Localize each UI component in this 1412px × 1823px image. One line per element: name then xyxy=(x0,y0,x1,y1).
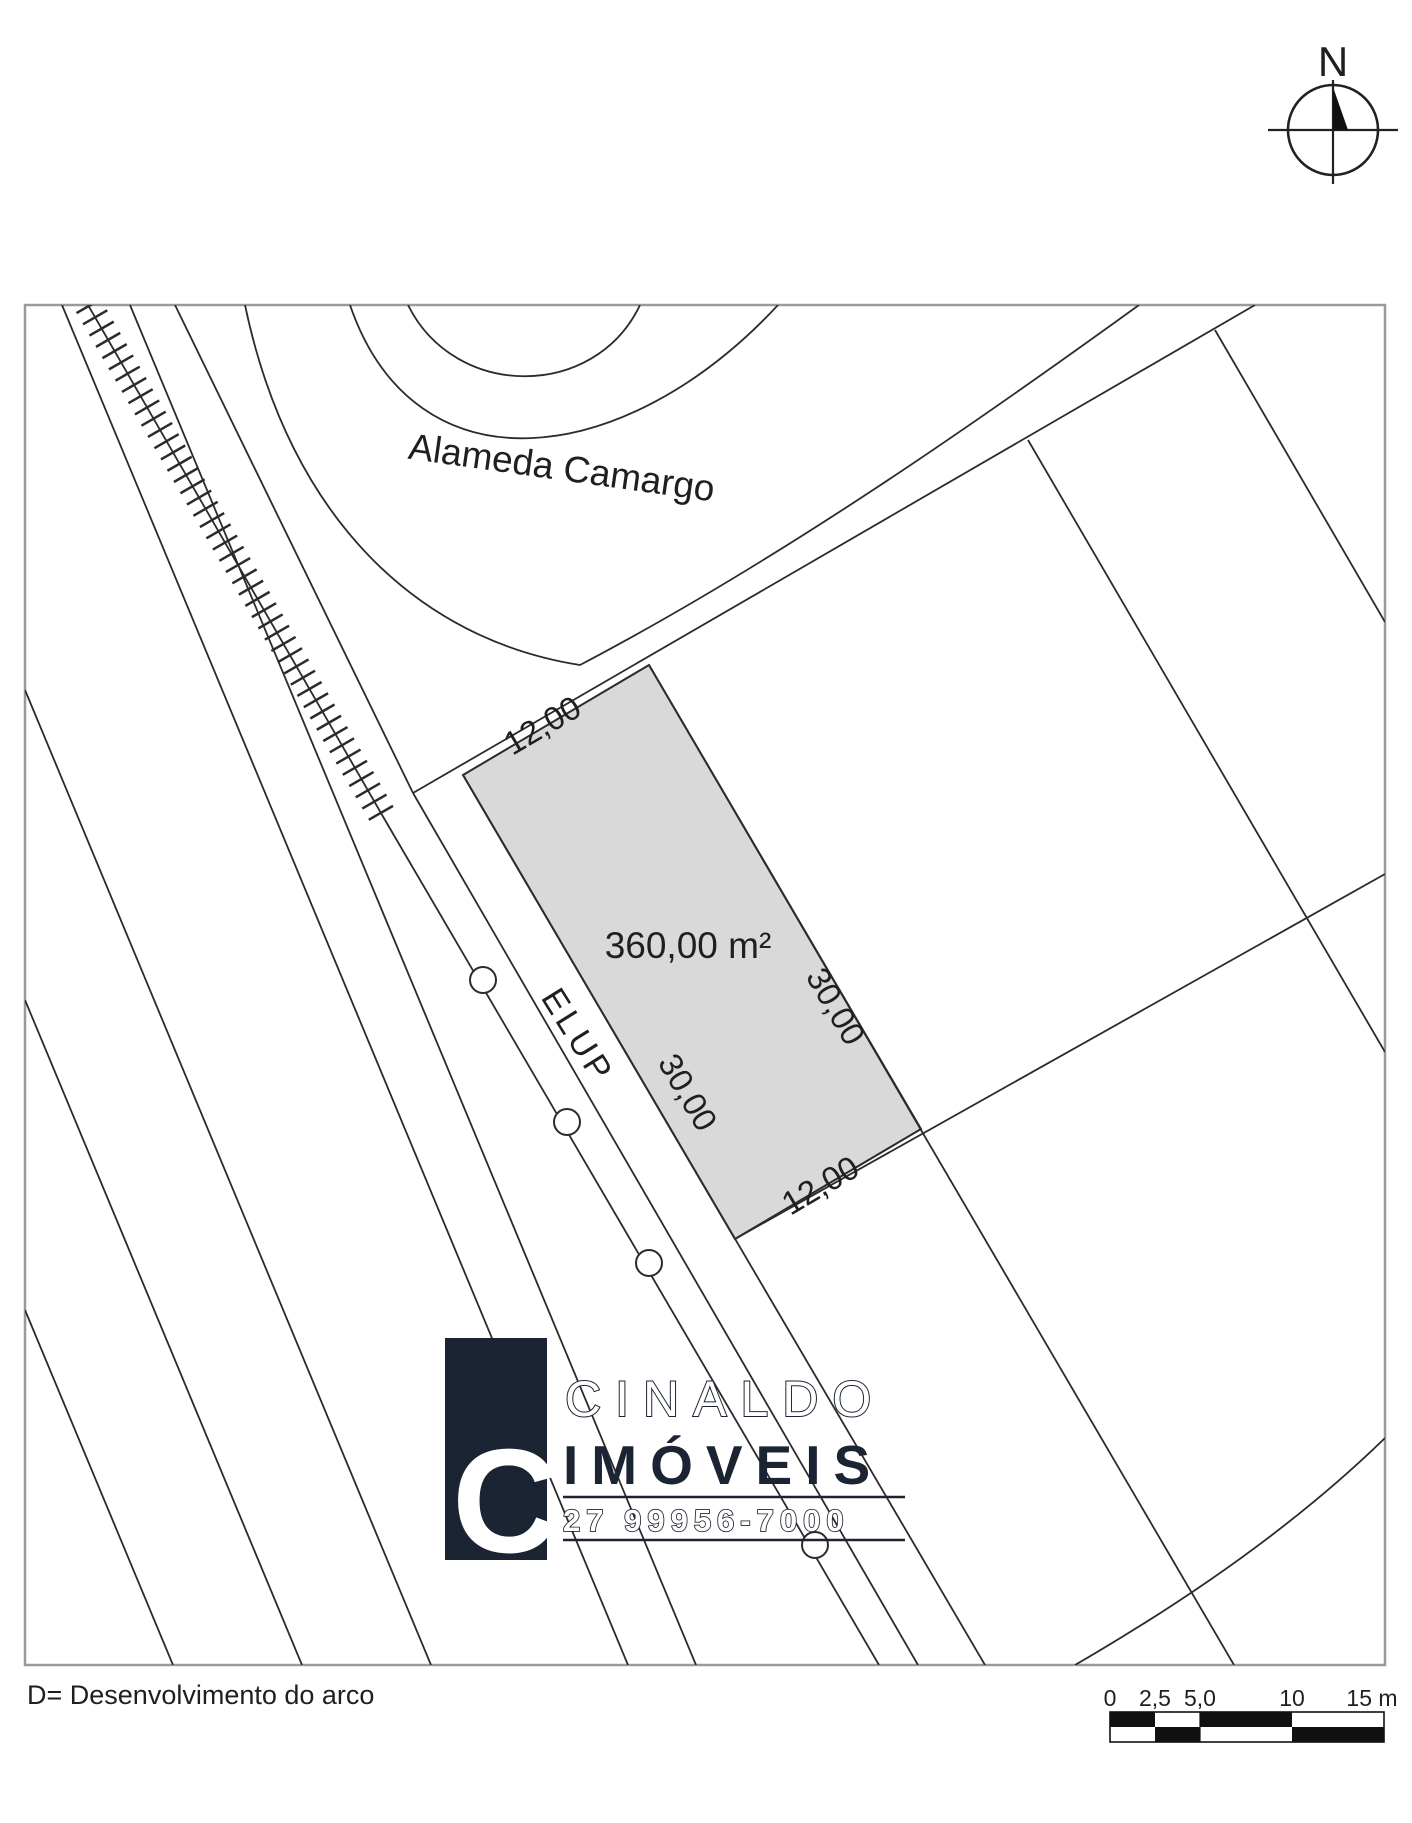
scale-segment xyxy=(1110,1727,1155,1742)
logo-phone: 27 99956-7000 xyxy=(563,1503,850,1538)
logo-name-line2: IMÓVEIS xyxy=(563,1434,883,1496)
scale-tick-label: 0 xyxy=(1104,1685,1117,1711)
scale-segment xyxy=(1200,1727,1292,1742)
legend-note: D= Desenvolvimento do arco xyxy=(27,1680,374,1710)
north-compass-icon: N xyxy=(1268,38,1398,184)
utility-pole-circle xyxy=(636,1250,662,1276)
compass-needle xyxy=(1333,87,1348,130)
site-plan-page: N xyxy=(0,0,1412,1823)
scale-segment xyxy=(1200,1712,1292,1727)
scale-segment xyxy=(1292,1727,1384,1742)
north-label: N xyxy=(1318,38,1348,85)
scale-segment xyxy=(1110,1712,1155,1727)
scale-segment xyxy=(1155,1712,1200,1727)
scale-tick-label: 5,0 xyxy=(1184,1685,1216,1711)
utility-pole-circle xyxy=(554,1109,580,1135)
scale-segment xyxy=(1292,1712,1384,1727)
scale-tick-label: 10 xyxy=(1279,1685,1305,1711)
scale-tick-label: 15 m xyxy=(1346,1685,1397,1711)
logo-mark-letter: C xyxy=(452,1419,559,1584)
lot-area-label: 360,00 m² xyxy=(605,925,772,966)
logo-name-line1: CINALDO xyxy=(565,1371,885,1427)
utility-pole-circle xyxy=(470,967,496,993)
scale-segment xyxy=(1155,1727,1200,1742)
site-plan-drawing: N xyxy=(0,0,1412,1823)
graphic-scale-bar: 0 2,5 5,0 10 15 m xyxy=(1104,1685,1398,1742)
scale-tick-label: 2,5 xyxy=(1139,1685,1171,1711)
